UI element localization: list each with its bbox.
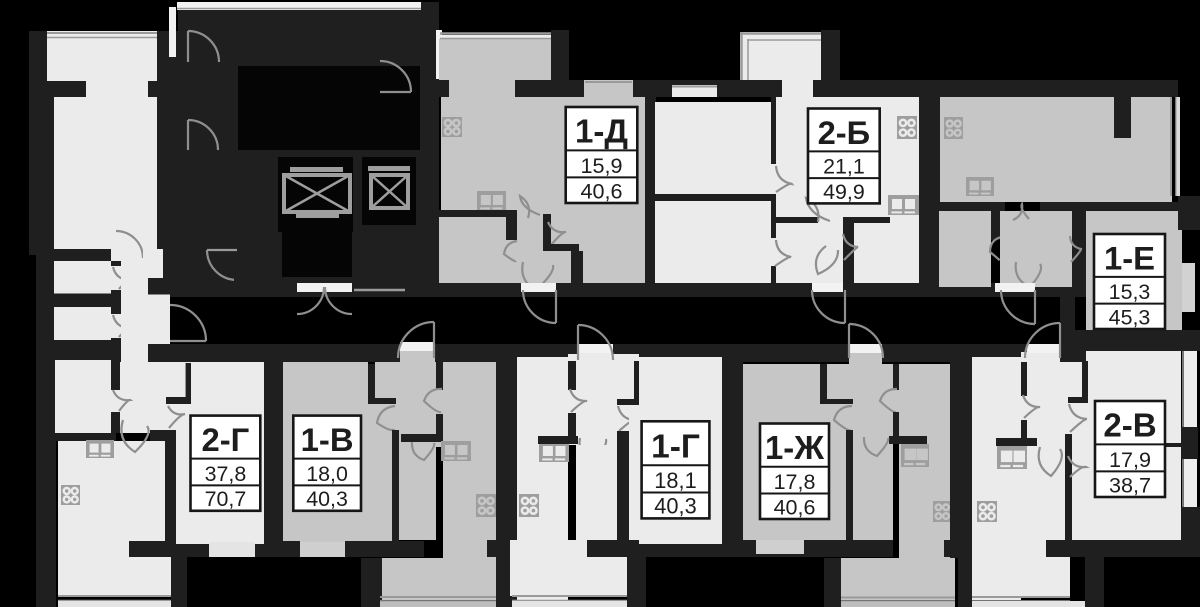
svg-text:17,9: 17,9: [1109, 447, 1151, 472]
svg-text:2-В: 2-В: [1103, 408, 1156, 445]
svg-text:70,7: 70,7: [205, 487, 247, 511]
svg-text:45,3: 45,3: [1109, 305, 1151, 329]
svg-text:2-Б: 2-Б: [818, 114, 871, 151]
svg-text:40,6: 40,6: [774, 495, 816, 519]
svg-text:1-В: 1-В: [301, 421, 354, 458]
svg-text:15,9: 15,9: [580, 153, 622, 178]
svg-text:18,1: 18,1: [654, 468, 696, 493]
svg-text:21,1: 21,1: [823, 155, 865, 179]
svg-text:1-Е: 1-Е: [1104, 239, 1155, 276]
svg-text:37,8: 37,8: [205, 462, 247, 486]
svg-text:40,6: 40,6: [580, 178, 622, 203]
svg-text:49,9: 49,9: [823, 180, 865, 204]
svg-text:15,3: 15,3: [1109, 280, 1151, 304]
svg-text:38,7: 38,7: [1109, 472, 1151, 497]
svg-text:40,3: 40,3: [306, 487, 348, 511]
svg-text:40,3: 40,3: [654, 494, 696, 519]
svg-text:1-Г: 1-Г: [651, 428, 700, 465]
svg-text:17,8: 17,8: [774, 470, 816, 494]
svg-text:2-Г: 2-Г: [202, 421, 250, 458]
svg-text:1-Ж: 1-Ж: [765, 429, 824, 466]
svg-text:1-Д: 1-Д: [575, 114, 628, 151]
svg-text:18,0: 18,0: [306, 462, 348, 486]
